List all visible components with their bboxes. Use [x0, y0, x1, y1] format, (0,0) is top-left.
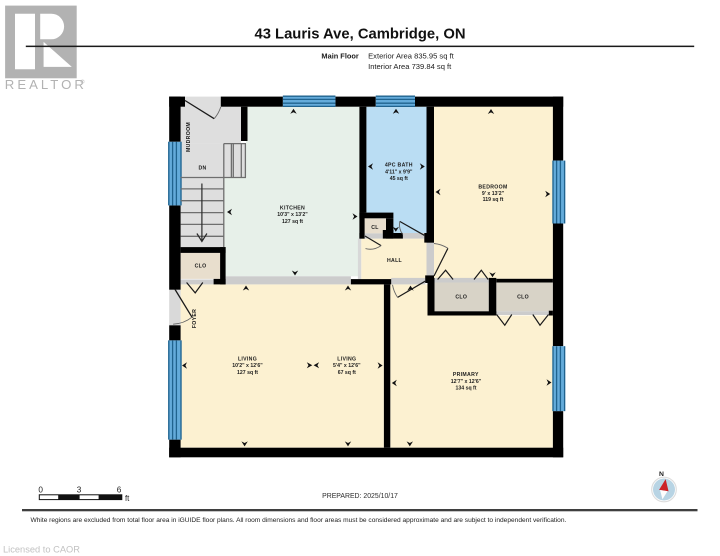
svg-text:CLO: CLO: [195, 263, 207, 269]
svg-text:4PC BATH: 4PC BATH: [385, 163, 413, 169]
svg-text:CLO: CLO: [455, 295, 467, 301]
svg-text:PRIMARY: PRIMARY: [453, 372, 479, 378]
svg-text:HALL: HALL: [387, 258, 403, 264]
svg-text:ft: ft: [125, 494, 130, 503]
svg-text:10'2" x 12'6": 10'2" x 12'6": [232, 363, 263, 369]
svg-text:FOYER: FOYER: [192, 309, 198, 328]
svg-text:REALTOR: REALTOR: [5, 77, 87, 92]
svg-text:Main Floor: Main Floor: [321, 52, 358, 61]
svg-text:10'3" x 13'2": 10'3" x 13'2": [277, 212, 308, 218]
svg-text:KITCHEN: KITCHEN: [280, 206, 305, 212]
svg-text:CL: CL: [371, 225, 379, 231]
svg-text:®: ®: [81, 79, 85, 86]
svg-text:45 sq ft: 45 sq ft: [390, 176, 408, 182]
svg-text:127 sq ft: 127 sq ft: [282, 219, 303, 225]
svg-text:9' x 13'2": 9' x 13'2": [482, 191, 505, 197]
svg-text:119 sq ft: 119 sq ft: [483, 197, 504, 203]
svg-text:LIVING: LIVING: [337, 356, 356, 362]
svg-text:BEDROOM: BEDROOM: [478, 184, 507, 190]
svg-text:12'7" x 12'6": 12'7" x 12'6": [451, 379, 482, 385]
svg-text:White regions are excluded fro: White regions are excluded from total fl…: [31, 517, 567, 524]
svg-text:PREPARED: 2025/10/17: PREPARED: 2025/10/17: [322, 493, 398, 500]
svg-text:43 Lauris Ave, Cambridge, ON: 43 Lauris Ave, Cambridge, ON: [254, 27, 465, 43]
svg-text:Interior Area 739.84 sq ft: Interior Area 739.84 sq ft: [368, 62, 452, 71]
svg-text:CLO: CLO: [517, 295, 529, 301]
svg-text:MUDROOM: MUDROOM: [186, 122, 192, 152]
svg-text:LIVING: LIVING: [238, 356, 257, 362]
svg-text:4'11" x 9'9": 4'11" x 9'9": [385, 169, 413, 175]
svg-text:3: 3: [77, 486, 82, 495]
svg-text:DN: DN: [198, 165, 206, 171]
svg-text:5'4" x 12'6": 5'4" x 12'6": [333, 363, 361, 369]
svg-text:0: 0: [38, 486, 43, 495]
svg-text:127 sq ft: 127 sq ft: [237, 370, 258, 376]
svg-text:6: 6: [117, 486, 122, 495]
svg-text:134 sq ft: 134 sq ft: [455, 385, 476, 391]
svg-text:67 sq ft: 67 sq ft: [338, 370, 356, 376]
svg-text:Licensed to CAOR: Licensed to CAOR: [3, 544, 80, 554]
svg-text:Exterior Area 835.95 sq ft: Exterior Area 835.95 sq ft: [368, 52, 455, 61]
